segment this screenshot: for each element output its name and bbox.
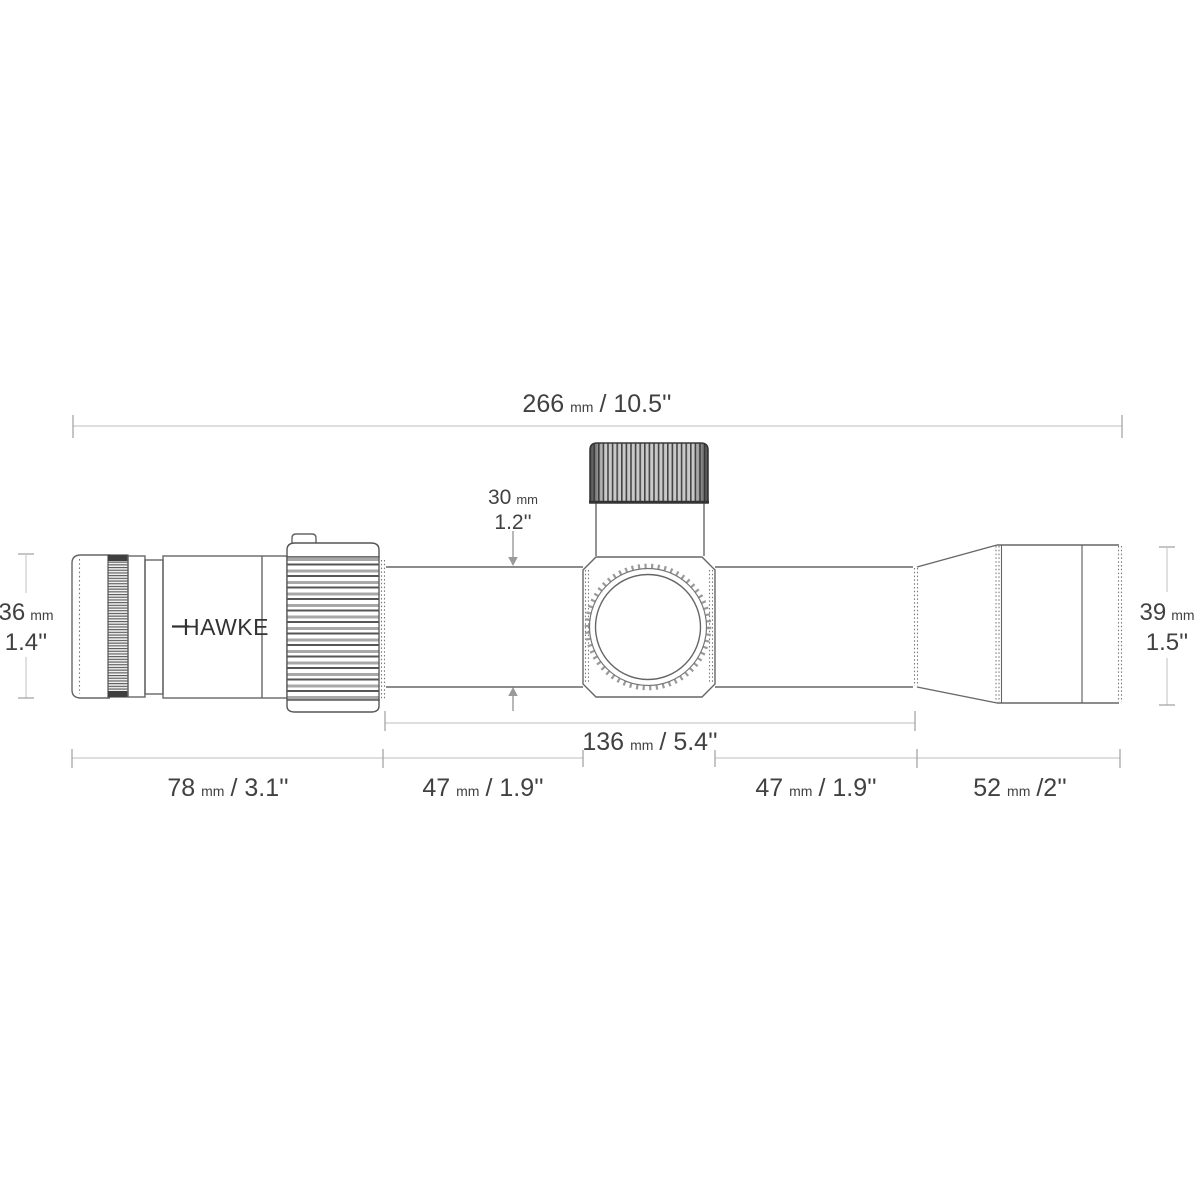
tube-end-dotted <box>915 568 918 686</box>
tube-diameter-arrows <box>508 531 518 711</box>
objective-diameter-label: 39 mm 1.5'' <box>1102 599 1200 656</box>
dim-unit: mm <box>30 602 53 629</box>
knurl-ring-top-cap <box>108 555 128 561</box>
dim-imperial: / 3.1'' <box>230 773 288 803</box>
dim-imperial: / 1.9'' <box>818 773 876 803</box>
rear-tube-length-label: 47 mm / 1.9'' <box>333 773 633 803</box>
dim-imperial: / 10.5'' <box>599 389 671 419</box>
bell-taper-bottom <box>917 687 997 703</box>
eyepiece-diameter-label: 36 mm 1.4'' <box>0 599 91 656</box>
riflescope-dimension-diagram: 266 mm / 10.5'' 136 mm / 5.4'' 78 mm / 3… <box>0 0 1200 1200</box>
dim-imperial: / 1.9'' <box>485 773 543 803</box>
dim-unit: mm <box>789 783 812 799</box>
dim-value: 39 <box>1139 599 1166 626</box>
down-arrow-head <box>508 557 518 566</box>
scope-body <box>72 443 1122 712</box>
tube-diameter-label: 30 mm 1.2'' <box>448 486 578 534</box>
knurl-ring-bottom-cap <box>108 691 128 697</box>
dim-imperial: 1.4'' <box>5 629 48 656</box>
dim-value: 52 <box>973 773 1001 803</box>
dim-value: 30 <box>488 486 511 509</box>
zoom-ring-ribbed-drum <box>287 557 379 700</box>
dim-value: 36 <box>0 599 25 626</box>
eyepiece-ring <box>128 556 145 697</box>
overall-length-label: 266 mm / 10.5'' <box>447 389 747 419</box>
dim-value: 47 <box>755 773 783 803</box>
dim-unit: mm <box>456 783 479 799</box>
dim-unit: mm <box>201 783 224 799</box>
dim-imperial: 1.2'' <box>494 511 531 534</box>
dim-value: 266 <box>522 389 564 419</box>
ocular-knurl-ring <box>108 555 128 697</box>
turret-cap-shading <box>590 443 708 503</box>
dim-imperial: / 5.4'' <box>659 727 717 757</box>
dim-unit: mm <box>570 399 593 415</box>
scope-line-drawing <box>0 0 1200 1200</box>
dim-unit: mm <box>630 737 653 753</box>
zoom-ring-top-cap <box>287 543 379 557</box>
dim-unit: mm <box>516 488 538 511</box>
dim-value: 47 <box>422 773 450 803</box>
dim-imperial: /2'' <box>1036 773 1066 803</box>
dim-value: 78 <box>167 773 195 803</box>
hawke-logo-text: HAWKE <box>183 615 273 639</box>
eyepiece-inset-ring <box>145 560 163 694</box>
bell-taper-top <box>917 545 997 567</box>
dim-unit: mm <box>1171 602 1194 629</box>
dim-imperial: 1.5'' <box>1146 629 1189 656</box>
objective-length-label: 52 mm /2'' <box>870 773 1170 803</box>
tube-section-length-label: 136 mm / 5.4'' <box>500 727 800 757</box>
knob-rim <box>590 569 707 686</box>
zoom-ring-bottom-cap <box>287 700 379 712</box>
dim-value: 136 <box>582 727 624 757</box>
dim-unit: mm <box>1007 783 1030 799</box>
zoom-ring-edge-dotted <box>382 560 385 699</box>
bell-joint-dotted <box>996 546 999 702</box>
up-arrow-head <box>508 687 518 696</box>
